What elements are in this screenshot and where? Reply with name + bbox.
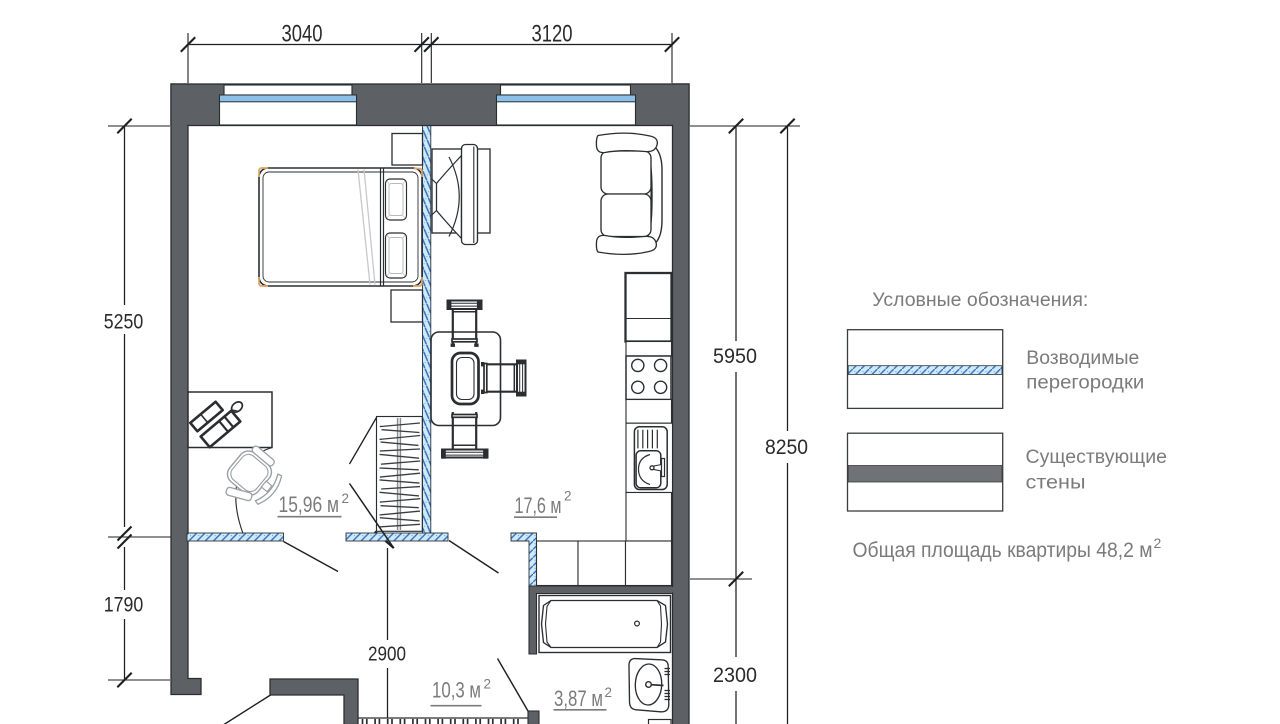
svg-text:2: 2 [342,491,350,506]
svg-text:2300: 2300 [713,663,757,687]
svg-text:перегородки: перегородки [1026,372,1144,394]
svg-text:10,3 м: 10,3 м [432,678,481,703]
svg-text:2: 2 [605,685,613,700]
svg-text:Условные обозначения:: Условные обозначения: [872,289,1088,311]
svg-text:5950: 5950 [713,344,757,368]
svg-text:Возводимые: Возводимые [1026,347,1139,369]
svg-text:стены: стены [1026,472,1086,494]
svg-text:5250: 5250 [104,310,144,334]
svg-text:2: 2 [1154,535,1162,551]
svg-text:2: 2 [564,489,572,504]
svg-text:3,87 м: 3,87 м [554,686,603,711]
svg-text:3120: 3120 [532,21,573,48]
svg-text:Существующие: Существующие [1026,446,1168,468]
svg-text:8250: 8250 [765,435,808,459]
svg-text:Общая площадь квартиры 48,2 м: Общая площадь квартиры 48,2 м [853,538,1153,562]
svg-text:17,6 м: 17,6 м [515,493,562,518]
svg-text:2: 2 [484,677,492,692]
svg-text:15,96 м: 15,96 м [279,492,340,517]
svg-text:1790: 1790 [104,593,144,617]
svg-text:2900: 2900 [368,644,406,666]
svg-text:3040: 3040 [282,21,323,48]
